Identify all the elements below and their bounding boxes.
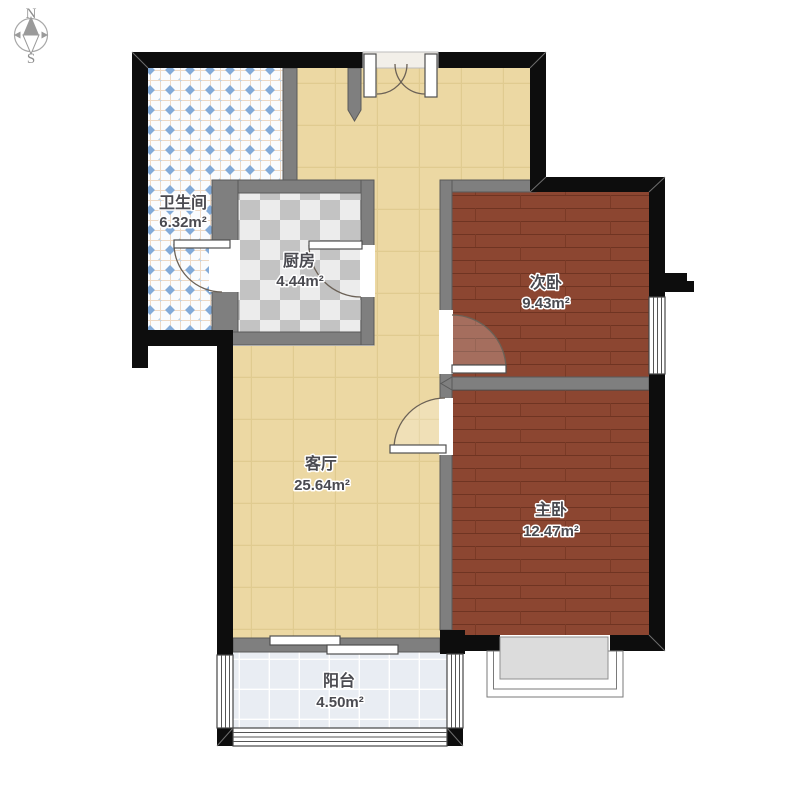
- bathroom-right-wall: [283, 68, 297, 180]
- step-vertical-wall: [530, 52, 546, 180]
- top-wall-left: [132, 52, 363, 68]
- balcony-window-right: [447, 654, 463, 728]
- master-bedroom-area: 12.47m²: [523, 523, 579, 540]
- right-wall-upper: [649, 177, 665, 297]
- top-wall-right: [438, 52, 546, 68]
- balcony-floor: [233, 652, 447, 729]
- kitchen-bottom-wall: [212, 332, 374, 345]
- balcony-area: 4.50m²: [316, 694, 364, 711]
- compass-icon: N S: [14, 6, 48, 67]
- entry-stub-wall: [348, 68, 361, 121]
- secondary-bedroom-area: 9.43m²: [522, 295, 570, 312]
- floor-plan-page: 卫生间 6.32m² 厨房 4.44m² 次卧 9.43m² 客厅 25.64m…: [0, 0, 800, 800]
- master-bay-window: [487, 637, 623, 697]
- bedroom2-window: [649, 297, 665, 374]
- living-room-area: 25.64m²: [294, 477, 350, 494]
- entry-jamb-left: [364, 54, 376, 97]
- balcony-label: 阳台: [323, 671, 355, 690]
- sliding-panel-right: [327, 645, 398, 654]
- bedroom-divider-wall: [452, 377, 649, 390]
- secondary-bedroom-label: 次卧: [530, 273, 562, 292]
- kitchen-area: 4.44m²: [276, 273, 324, 290]
- left-wall: [132, 52, 148, 368]
- bathroom-label: 卫生间: [159, 193, 207, 212]
- bathroom-area: 6.32m²: [159, 214, 207, 231]
- living-room-label: 客厅: [305, 454, 337, 473]
- sliding-panel-left: [270, 636, 340, 645]
- bedroom2-top-wall: [452, 180, 536, 192]
- kitchen-door-panel: [309, 241, 362, 249]
- entry-jamb-right: [425, 54, 437, 97]
- kitchen-label: 厨房: [283, 251, 315, 270]
- floor-plan-canvas: 卫生间 6.32m² 厨房 4.44m² 次卧 9.43m² 客厅 25.64m…: [0, 0, 800, 800]
- wall-junction-block: [440, 630, 465, 654]
- step-horizontal-wall: [530, 177, 665, 192]
- balcony-window-bottom: [233, 728, 447, 746]
- balcony-corner-tl: [217, 638, 233, 655]
- bathroom-door-panel: [174, 240, 230, 248]
- living-room-left-wall: [217, 330, 233, 655]
- flue-notch: [687, 273, 694, 281]
- right-wall-lower: [649, 374, 665, 651]
- balcony-window-left: [217, 655, 233, 728]
- bedroom2-door-panel: [452, 365, 506, 373]
- compass-south-label: S: [27, 51, 35, 67]
- master-door-panel: [390, 445, 446, 453]
- master-bedroom-label: 主卧: [535, 500, 567, 519]
